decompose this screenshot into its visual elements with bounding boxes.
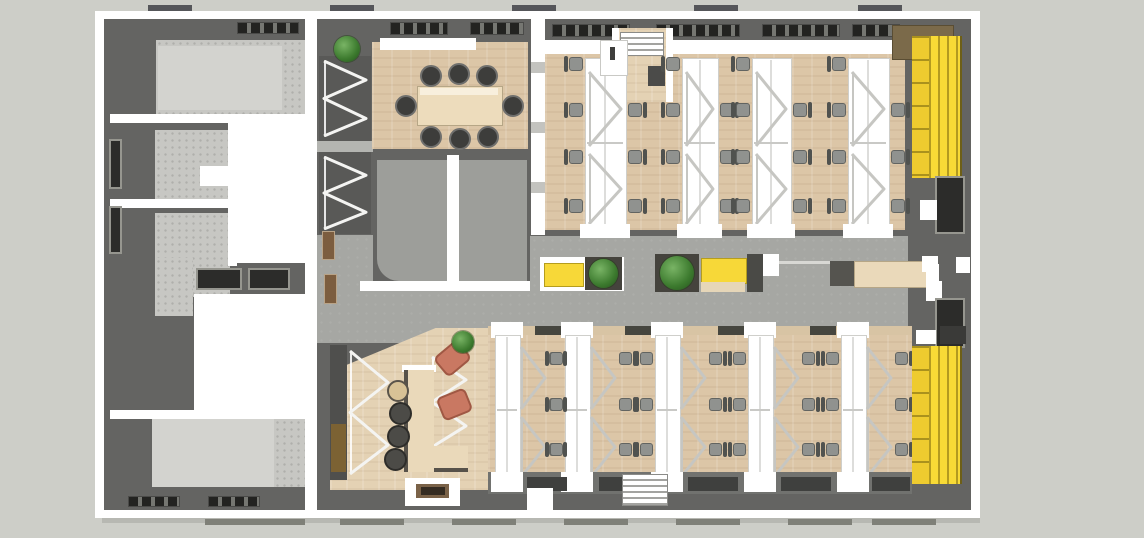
bench-end-unit <box>747 254 763 292</box>
meeting-room-credenza <box>380 38 476 50</box>
bench-end-cap <box>763 254 779 276</box>
north-wall-window <box>390 22 448 35</box>
partition-glass <box>718 326 744 335</box>
desk-truss-frame <box>865 415 893 479</box>
chair-back <box>564 56 568 72</box>
office-chair <box>628 149 647 165</box>
locker-bank-side <box>912 346 929 484</box>
chair-seat <box>832 199 846 213</box>
chair-seat <box>736 57 750 71</box>
chair-back <box>808 198 812 214</box>
bar-stool <box>387 425 410 448</box>
south-wall-window <box>128 496 180 507</box>
chair-seat <box>569 57 583 71</box>
chair-seat <box>736 103 750 117</box>
chair-seat <box>733 352 746 365</box>
office-chair <box>564 149 583 165</box>
desk-split <box>657 409 677 411</box>
chair-back <box>661 149 665 165</box>
bar-stool <box>384 448 407 471</box>
desk-bench-column <box>495 335 521 487</box>
chair-seat <box>640 398 653 411</box>
bar-counter-foot-edge <box>434 468 468 472</box>
shadow-dash <box>676 519 740 525</box>
chair-back <box>821 442 825 457</box>
chair-seat <box>802 443 815 456</box>
chair-seat <box>832 150 846 164</box>
desk-truss-frame <box>679 415 707 479</box>
room-core-white-floor <box>237 123 305 263</box>
office-chair <box>821 351 839 366</box>
desk-truss-frame <box>519 345 547 411</box>
office-chair <box>728 397 746 412</box>
chair-back <box>827 198 831 214</box>
chair-back <box>808 102 812 118</box>
wall-band <box>360 281 530 291</box>
chair-seat <box>666 103 680 117</box>
small-room-1-floor <box>377 160 447 281</box>
chair-seat <box>891 103 905 117</box>
partition-glass <box>535 326 561 335</box>
south-window-mat <box>781 477 831 491</box>
chair-back <box>827 149 831 165</box>
desk-bench-column <box>655 335 681 487</box>
chair-back <box>731 102 735 118</box>
yellow-bench <box>544 263 584 287</box>
wall-band-vertical <box>228 114 237 266</box>
desk-truss-frame <box>679 345 707 411</box>
desk-end-cap <box>843 224 893 238</box>
chair-seat <box>895 443 908 456</box>
chair-back <box>731 198 735 214</box>
office-chair <box>709 442 727 457</box>
office-chair <box>564 198 583 214</box>
chair-seat <box>619 443 632 456</box>
chair-seat <box>793 199 807 213</box>
meeting-chair <box>477 126 499 148</box>
south-window-mat <box>872 477 910 491</box>
meeting-chair <box>420 126 442 148</box>
chair-seat <box>619 398 632 411</box>
cafe-wood-cabinet <box>331 424 346 472</box>
bar-stool <box>389 402 412 425</box>
desk-truss-frame <box>684 70 715 148</box>
chair-back <box>635 397 639 412</box>
office-north-band <box>545 40 905 54</box>
chair-back <box>906 198 910 214</box>
small-room-divider <box>447 155 459 281</box>
chair-seat <box>826 398 839 411</box>
shadow-dash <box>205 519 305 525</box>
desk-truss-frame <box>589 415 617 479</box>
office-chair <box>895 351 913 366</box>
chair-seat <box>550 398 563 411</box>
chair-seat <box>666 199 680 213</box>
chair-seat <box>619 352 632 365</box>
desk-truss-frame <box>589 345 617 411</box>
office-chair <box>827 56 846 72</box>
chair-back <box>728 442 732 457</box>
desk-truss-frame <box>519 415 547 479</box>
chair-seat <box>709 443 722 456</box>
chair-seat <box>628 150 642 164</box>
office-chair <box>895 397 913 412</box>
room-s-floor-concrete <box>274 419 306 487</box>
desk-truss-frame <box>684 152 715 226</box>
meeting-chair <box>448 63 470 85</box>
office-chair <box>793 102 812 118</box>
chair-back <box>545 397 549 412</box>
chair-back <box>728 397 732 412</box>
storage-cabinet-slot <box>610 47 615 60</box>
partition-glass <box>625 326 651 335</box>
office-chair <box>545 442 563 457</box>
corridor-table-end <box>830 261 854 286</box>
office-chair <box>628 102 647 118</box>
office-chair <box>635 351 653 366</box>
chair-back <box>661 102 665 118</box>
chair-seat <box>569 199 583 213</box>
office-chair <box>731 56 750 72</box>
office-chair <box>728 351 746 366</box>
chair-seat <box>709 352 722 365</box>
partition-glass <box>810 326 836 335</box>
office-chair <box>827 102 846 118</box>
entrance-mat-inner <box>421 487 445 495</box>
yellow-bench <box>701 258 747 284</box>
chair-back <box>731 149 735 165</box>
office-chair <box>661 198 680 214</box>
room-s-floor-slab <box>152 419 274 487</box>
room-sw-white-floor <box>194 294 306 410</box>
desk-truss-frame <box>850 152 886 226</box>
office-chair <box>564 102 583 118</box>
office-chair <box>802 442 820 457</box>
wood-door <box>324 274 337 304</box>
office-chair <box>635 442 653 457</box>
west-wall-window <box>109 206 122 254</box>
chair-back <box>731 56 735 72</box>
chair-back <box>723 351 727 366</box>
entrance-steps <box>622 474 668 506</box>
chair-seat <box>628 103 642 117</box>
clerestory-window <box>196 268 242 290</box>
chair-seat <box>640 443 653 456</box>
cafe-plant <box>452 331 474 353</box>
stair-landing-strip <box>317 141 373 152</box>
office-chair <box>891 198 910 214</box>
desk-split <box>843 409 863 411</box>
chair-back <box>728 351 732 366</box>
chair-seat <box>736 199 750 213</box>
chair-back <box>643 149 647 165</box>
chair-seat <box>733 398 746 411</box>
desk-truss-frame <box>587 70 623 148</box>
chair-back <box>563 442 567 457</box>
locker-bank-side <box>912 36 929 178</box>
office-chair <box>709 397 727 412</box>
chair-back <box>563 397 567 412</box>
office-chair <box>821 442 839 457</box>
chair-back <box>661 56 665 72</box>
office-chair <box>545 397 563 412</box>
chair-back <box>821 397 825 412</box>
office-chair <box>891 102 910 118</box>
chair-seat <box>550 443 563 456</box>
office-chair <box>802 351 820 366</box>
wall-band <box>110 410 306 419</box>
desk-bench-column <box>565 335 591 487</box>
locker-top-dark <box>940 326 966 344</box>
chair-seat <box>895 398 908 411</box>
office-chair <box>728 442 746 457</box>
desk-truss-frame <box>754 152 788 226</box>
core-white-unit <box>956 257 970 273</box>
office-chair <box>821 397 839 412</box>
chair-seat <box>832 57 846 71</box>
chair-seat <box>666 150 680 164</box>
shadow-dash <box>564 519 628 525</box>
office-chair <box>545 351 563 366</box>
core-white-unit <box>920 200 937 220</box>
chair-seat <box>802 352 815 365</box>
chair-seat <box>666 57 680 71</box>
chair-seat <box>550 352 563 365</box>
chair-back <box>545 442 549 457</box>
office-chair <box>793 198 812 214</box>
chair-back <box>816 351 820 366</box>
chair-seat <box>709 398 722 411</box>
office-west-wall-glass <box>531 182 545 193</box>
chair-back <box>821 351 825 366</box>
stair-railing-1 <box>322 60 368 137</box>
chair-seat <box>832 103 846 117</box>
south-wall-window <box>208 496 260 507</box>
chair-seat <box>569 150 583 164</box>
chair-back <box>635 351 639 366</box>
shadow-dash <box>872 519 936 525</box>
locker-bank-front <box>929 36 962 178</box>
room-west-1-floor <box>155 130 230 200</box>
desk-truss-frame <box>587 152 623 226</box>
standing-rail <box>779 261 831 264</box>
office-west-wall-glass <box>531 122 545 133</box>
office-chair <box>564 56 583 72</box>
desk-truss-frame <box>754 70 788 148</box>
planter-plant <box>660 256 694 290</box>
office-chair <box>731 198 750 214</box>
chair-back <box>635 442 639 457</box>
chair-back <box>827 56 831 72</box>
office-chair <box>731 102 750 118</box>
wall-band <box>110 199 234 208</box>
room-nw-floor-slab <box>158 46 282 110</box>
chair-back <box>564 102 568 118</box>
chair-back <box>827 102 831 118</box>
desk-truss-frame <box>865 345 893 411</box>
planter-plant <box>589 259 618 288</box>
office-chair <box>635 397 653 412</box>
meeting-chair <box>449 128 471 150</box>
north-wall-window <box>762 24 840 37</box>
chair-seat <box>569 103 583 117</box>
west-wall-window <box>109 139 122 189</box>
bar-stool <box>387 380 409 402</box>
office-chair <box>891 149 910 165</box>
chair-back <box>563 351 567 366</box>
shadow-dash <box>340 519 404 525</box>
wall-band <box>110 114 308 123</box>
chair-back <box>906 149 910 165</box>
office-west-wall-glass <box>531 62 545 73</box>
south-pier <box>837 472 869 492</box>
south-pier <box>744 472 776 492</box>
meeting-chair <box>502 95 524 117</box>
chair-back <box>906 102 910 118</box>
office-chair <box>628 198 647 214</box>
chair-seat <box>895 352 908 365</box>
chair-back <box>564 149 568 165</box>
room-sw-concrete-edge <box>155 258 193 316</box>
chair-seat <box>793 150 807 164</box>
office-chair <box>793 149 812 165</box>
office-chair <box>661 102 680 118</box>
floor-plan-canvas <box>0 0 1144 538</box>
locker-top-cap <box>916 330 936 344</box>
bench-base <box>701 282 745 292</box>
desk-truss-frame <box>772 415 800 479</box>
south-pier <box>491 472 523 492</box>
meeting-chair <box>420 65 442 87</box>
desk-end-cap <box>677 224 722 238</box>
chair-back <box>816 442 820 457</box>
office-chair <box>731 149 750 165</box>
chair-back <box>723 442 727 457</box>
stair-railing-2 <box>322 156 368 230</box>
clerestory-window <box>248 268 290 290</box>
chair-seat <box>793 103 807 117</box>
chair-seat <box>733 443 746 456</box>
meeting-chair <box>395 95 417 117</box>
desk-split <box>567 409 587 411</box>
chair-seat <box>802 398 815 411</box>
desk-end-cap <box>747 224 795 238</box>
chair-back <box>808 149 812 165</box>
office-chair <box>895 442 913 457</box>
chair-seat <box>628 199 642 213</box>
chair-back <box>723 397 727 412</box>
desk-split <box>750 409 770 411</box>
chair-back <box>643 198 647 214</box>
office-chair <box>827 149 846 165</box>
chair-back <box>661 198 665 214</box>
bar-counter <box>408 370 434 472</box>
desk-end-cap <box>580 224 630 238</box>
shadow-dash <box>788 519 852 525</box>
core-divider-wall <box>305 19 317 510</box>
desk-bench-column <box>841 335 867 487</box>
desk-bench-column <box>748 335 774 487</box>
office-chair <box>827 198 846 214</box>
office-chair <box>709 351 727 366</box>
office-chair <box>802 397 820 412</box>
desk-truss-frame <box>850 70 886 148</box>
south-window-mat <box>688 477 738 491</box>
meeting-chair <box>476 65 498 87</box>
chair-seat <box>891 199 905 213</box>
chair-seat <box>640 352 653 365</box>
north-wall-window <box>237 22 299 34</box>
entrance-door <box>527 488 553 512</box>
north-wall-window <box>470 22 524 35</box>
shadow-dash <box>452 519 516 525</box>
wood-door <box>322 231 335 260</box>
chair-seat <box>736 150 750 164</box>
glazed-booth <box>935 176 965 234</box>
desk-split <box>497 409 517 411</box>
core-white-unit <box>922 256 938 272</box>
chair-seat <box>826 352 839 365</box>
office-chair <box>661 56 680 72</box>
chair-back <box>545 351 549 366</box>
chair-seat <box>826 443 839 456</box>
meeting-table-highlight <box>420 88 498 95</box>
potted-plant <box>334 36 360 62</box>
chair-back <box>643 102 647 118</box>
office-chair <box>661 149 680 165</box>
desk-truss-frame <box>772 345 800 411</box>
corridor-table <box>854 261 928 288</box>
chair-back <box>816 397 820 412</box>
small-room-2-floor <box>459 160 527 281</box>
chair-seat <box>891 150 905 164</box>
locker-bank-front <box>929 346 962 484</box>
chair-back <box>564 198 568 214</box>
